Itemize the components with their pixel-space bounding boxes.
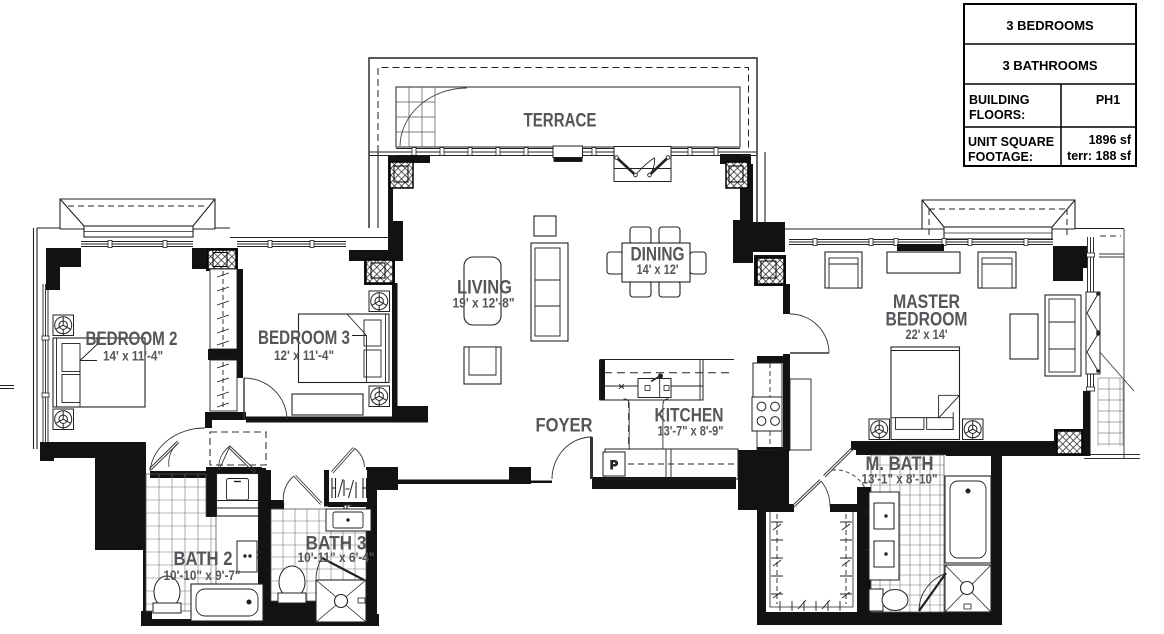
svg-text:BEDROOM 3: BEDROOM 3 — [258, 327, 350, 349]
svg-text:BEDROOM 2: BEDROOM 2 — [86, 328, 178, 350]
svg-text:UNIT SQUARE: UNIT SQUARE — [968, 135, 1054, 149]
svg-text:14' x 11'-4": 14' x 11'-4" — [103, 349, 163, 364]
svg-text:13'-7" x 8'-9": 13'-7" x 8'-9" — [658, 424, 724, 439]
svg-text:22' x 14': 22' x 14' — [906, 327, 948, 342]
svg-text:12' x 11'-4": 12' x 11'-4" — [274, 348, 334, 363]
svg-text:1896 sf: 1896 sf — [1089, 133, 1132, 147]
svg-text:13'-1" x 8'-10": 13'-1" x 8'-10" — [862, 472, 938, 487]
svg-text:10'-10" x 9'-7": 10'-10" x 9'-7" — [164, 568, 241, 583]
svg-text:BUILDING: BUILDING — [969, 93, 1029, 107]
svg-text:FOOTAGE:: FOOTAGE: — [968, 150, 1033, 164]
svg-text:terr: 188 sf: terr: 188 sf — [1067, 149, 1132, 163]
svg-text:3 BATHROOMS: 3 BATHROOMS — [1002, 58, 1097, 73]
svg-text:P: P — [610, 458, 618, 472]
svg-text:3 BEDROOMS: 3 BEDROOMS — [1006, 18, 1094, 33]
svg-text:FLOORS:: FLOORS: — [969, 108, 1025, 122]
svg-text:19' x 12'-8": 19' x 12'-8" — [453, 296, 515, 311]
svg-text:10'-11" x 6'-4": 10'-11" x 6'-4" — [298, 550, 375, 565]
svg-text:TERRACE: TERRACE — [524, 110, 597, 132]
svg-text:14' x 12': 14' x 12' — [637, 262, 679, 277]
svg-text:BATH 2: BATH 2 — [174, 548, 233, 570]
svg-text:PH1: PH1 — [1096, 93, 1120, 107]
svg-text:FOYER: FOYER — [536, 415, 593, 437]
